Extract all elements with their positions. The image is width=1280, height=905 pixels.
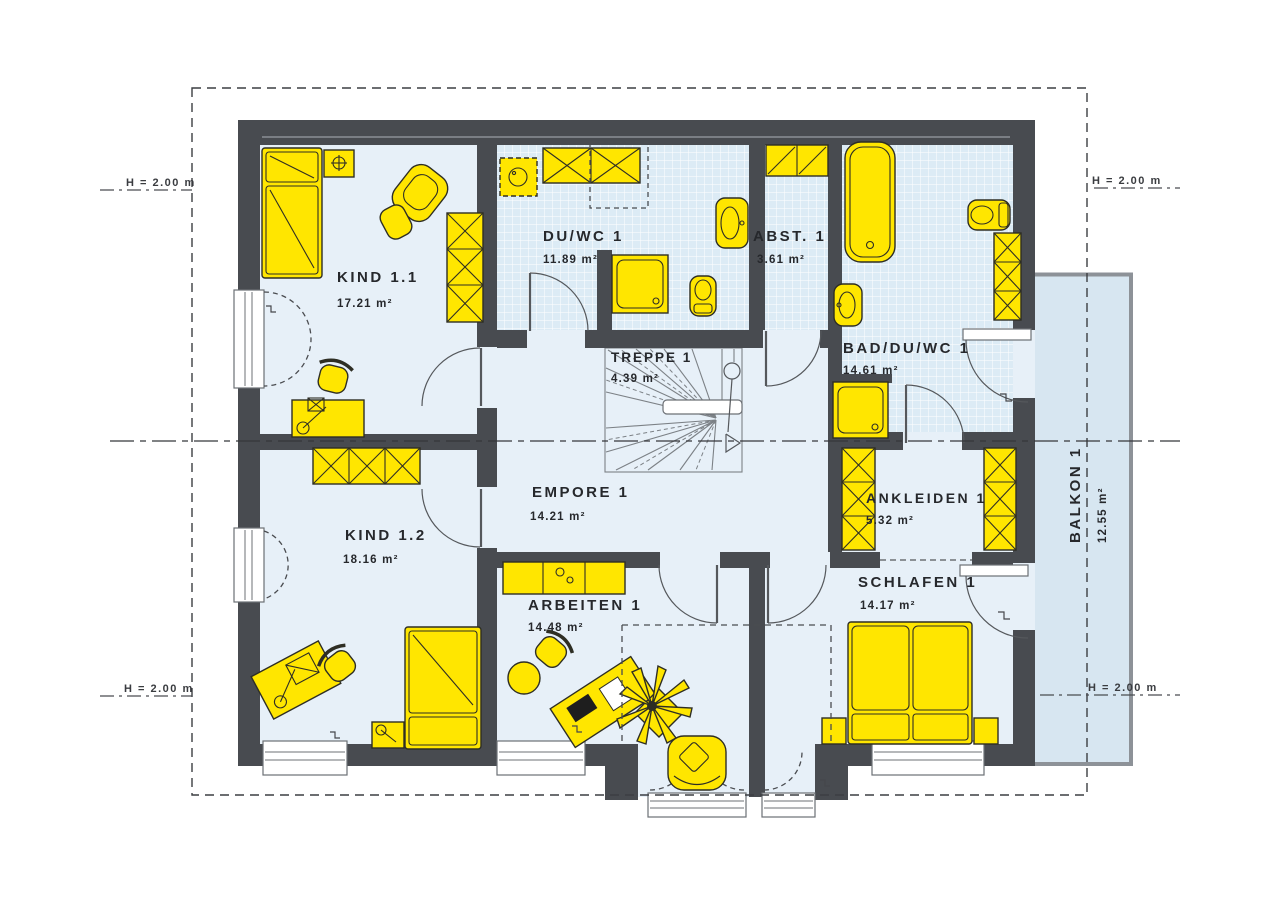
toilet <box>968 200 1010 230</box>
room-label-bad: BAD/DU/WC 1 <box>843 340 971 357</box>
room-area-arbeiten: 14.48 m² <box>528 622 584 634</box>
cabinet <box>543 148 640 183</box>
wall-north <box>238 120 1035 145</box>
height-marker-bottom-right: H = 2.00 m <box>1088 682 1158 694</box>
shower <box>612 255 668 313</box>
room-area-empore: 14.21 m² <box>530 511 586 523</box>
room-label-kind12: KIND 1.2 <box>345 527 427 544</box>
room-label-empore: EMPORE 1 <box>532 484 630 501</box>
room-label-balkon: BALKON 1 <box>1067 446 1084 543</box>
bathtub <box>845 142 895 262</box>
sideboard <box>503 562 625 594</box>
window-kind12-south <box>263 741 347 775</box>
height-marker-top-left: H = 2.00 m <box>126 177 196 189</box>
room-label-arbeiten: ARBEITEN 1 <box>528 597 642 614</box>
bay-right-pillar <box>815 744 848 800</box>
bay-right-floor <box>762 744 815 797</box>
room-label-duwc: DU/WC 1 <box>543 228 624 245</box>
nightstand-left <box>822 718 846 744</box>
nightstand-right <box>974 718 998 744</box>
washbasin <box>834 284 862 326</box>
desk <box>292 400 364 437</box>
armchair-bay <box>668 736 726 790</box>
sink <box>716 198 748 248</box>
wall-abst-bad <box>828 145 842 568</box>
room-area-kind12: 18.16 m² <box>343 554 399 566</box>
room-label-abst: ABST. 1 <box>753 228 826 245</box>
floor-plan-page: KIND 1.1 17.21 m² DU/WC 1 11.89 m² ABST.… <box>0 0 1280 905</box>
room-area-ankleiden: 5.32 m² <box>866 515 914 527</box>
room-label-schlafen: SCHLAFEN 1 <box>858 574 977 591</box>
height-marker-bottom-left: H = 2.00 m <box>124 683 194 695</box>
room-area-duwc: 11.89 m² <box>543 254 598 266</box>
room-area-balkon: 12.55 m² <box>1097 487 1109 543</box>
room-area-treppe: 4.39 m² <box>611 373 659 385</box>
cabinet <box>994 233 1021 320</box>
floor-plan-svg: KIND 1.1 17.21 m² DU/WC 1 11.89 m² ABST.… <box>0 0 1280 905</box>
double-bed <box>848 622 972 744</box>
wall-duwc-shower-stub <box>597 250 612 330</box>
toilet <box>690 276 716 316</box>
room-area-schlafen: 14.17 m² <box>860 600 916 612</box>
wardrobe <box>313 448 420 484</box>
wardrobe <box>447 213 483 322</box>
window-schlafen-south <box>872 741 984 775</box>
height-marker-top-right: H = 2.00 m <box>1092 175 1162 187</box>
room-label-treppe: TREPPE 1 <box>611 350 692 365</box>
wardrobe-right <box>984 448 1016 550</box>
shower <box>833 382 888 438</box>
bay-left-pillar <box>605 744 638 800</box>
room-area-bad: 14.61 m² <box>843 365 899 377</box>
round-table <box>508 662 540 694</box>
room-label-ankleiden: ANKLEIDEN 1 <box>866 490 987 506</box>
washing-machine <box>500 158 537 196</box>
room-label-kind11: KIND 1.1 <box>337 269 419 286</box>
wall-schlafen-west <box>749 552 765 797</box>
wall-west <box>238 120 260 766</box>
schlafen-furniture <box>822 622 998 744</box>
window-arbeiten-south <box>497 741 585 775</box>
abst-furniture <box>766 145 828 176</box>
room-area-abst: 3.61 m² <box>757 254 805 266</box>
room-area-kind11: 17.21 m² <box>337 298 393 310</box>
bed <box>405 627 481 749</box>
